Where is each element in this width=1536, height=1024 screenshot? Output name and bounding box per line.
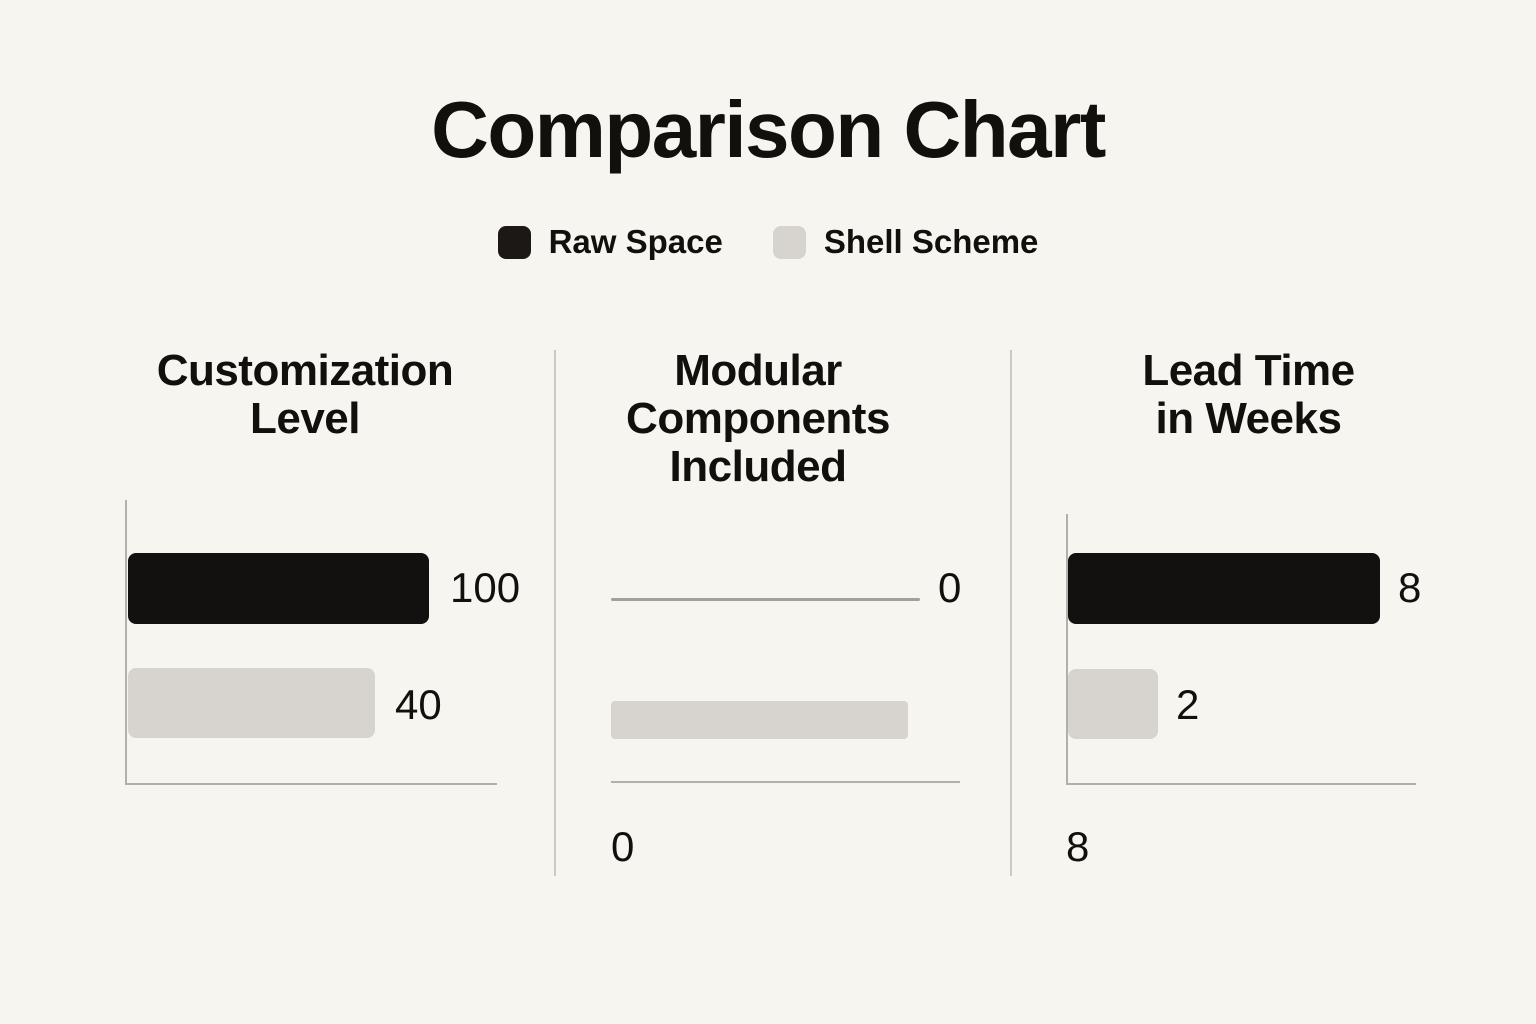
panel-divider-2 <box>1010 350 1012 876</box>
bar-value-label: 40 <box>395 684 442 726</box>
x-axis-line <box>1066 783 1416 785</box>
legend-item-raw-space: Raw Space <box>498 224 723 260</box>
panel-title-line: Components <box>558 395 958 443</box>
bar-raw-space <box>1068 553 1380 624</box>
chart-legend: Raw Space Shell Scheme <box>0 224 1536 260</box>
legend-item-shell-scheme: Shell Scheme <box>773 224 1039 260</box>
panel-title-line: Level <box>100 395 510 443</box>
bar-value-label: 2 <box>1176 684 1199 726</box>
bar-value-label: 8 <box>1398 567 1421 609</box>
bar-raw-space <box>128 553 429 624</box>
panel-title: Customization Level <box>100 347 510 443</box>
panel-title: Modular Components Included <box>558 347 958 491</box>
axis-origin-label: 8 <box>1066 826 1089 868</box>
bar-shell-scheme <box>611 701 908 739</box>
legend-swatch-shell-scheme <box>773 226 806 259</box>
panel-title-line: Lead Time <box>1040 347 1457 395</box>
y-axis-line <box>125 500 127 784</box>
bar-shell-scheme <box>128 668 375 738</box>
bar-shell-scheme <box>1068 669 1158 739</box>
x-axis-line <box>125 783 497 785</box>
comparison-chart: Comparison Chart Raw Space Shell Scheme … <box>0 0 1536 1024</box>
y-axis-line <box>1066 514 1068 784</box>
axis-origin-label: 0 <box>611 826 634 868</box>
legend-swatch-raw-space <box>498 226 531 259</box>
panel-title-line: Customization <box>100 347 510 395</box>
legend-label-raw-space: Raw Space <box>549 224 723 260</box>
panel-divider-1 <box>554 350 556 876</box>
chart-title: Comparison Chart <box>0 86 1536 174</box>
legend-label-shell-scheme: Shell Scheme <box>824 224 1039 260</box>
bar-raw-space-zero-line <box>611 598 920 601</box>
panel-title-line: Included <box>558 443 958 491</box>
panel-title-line: in Weeks <box>1040 395 1457 443</box>
panel-title: Lead Time in Weeks <box>1040 347 1457 443</box>
panel-title-line: Modular <box>558 347 958 395</box>
bar-value-label: 0 <box>938 567 961 609</box>
x-axis-line <box>611 781 960 783</box>
bar-value-label: 100 <box>450 567 520 609</box>
